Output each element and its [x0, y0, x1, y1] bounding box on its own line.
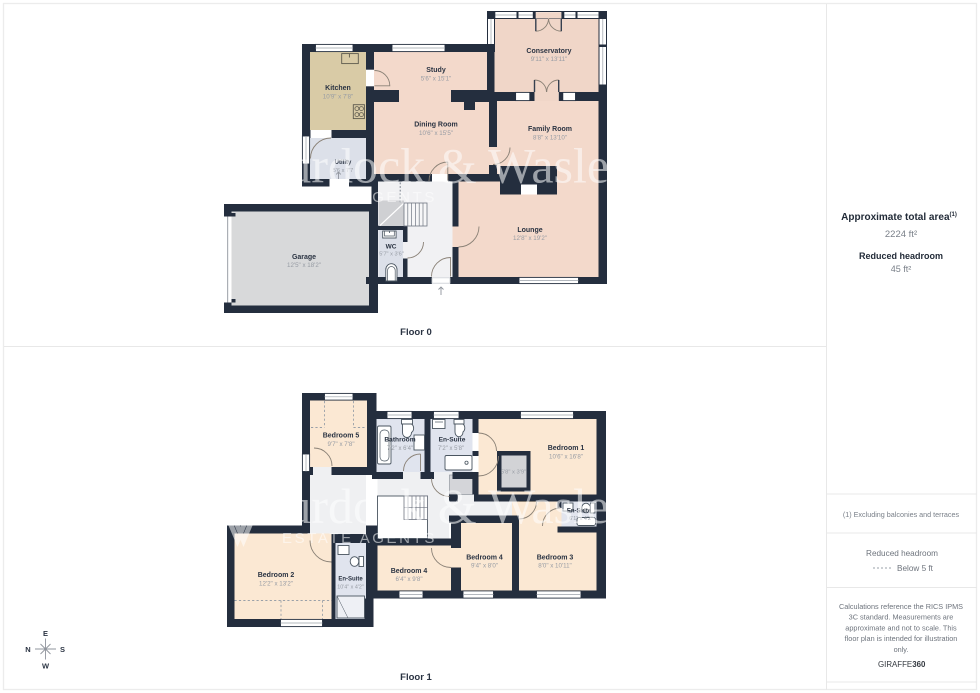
- svg-text:10'4" x 4'2": 10'4" x 4'2": [337, 585, 364, 591]
- svg-text:6'4" x 9'8": 6'4" x 9'8": [395, 576, 422, 583]
- svg-text:10'6" x 16'8": 10'6" x 16'8": [549, 454, 583, 461]
- svg-text:12'2" x 13'2": 12'2" x 13'2": [259, 581, 293, 588]
- svg-text:8'0" x 10'11": 8'0" x 10'11": [538, 563, 571, 570]
- svg-text:Below 5 ft: Below 5 ft: [897, 564, 934, 573]
- svg-text:Bedroom 1: Bedroom 1: [548, 445, 585, 452]
- svg-text:Lounge: Lounge: [517, 227, 542, 234]
- svg-text:5'7" x 3'6": 5'7" x 3'6": [379, 252, 403, 258]
- svg-text:Conservatory: Conservatory: [526, 48, 571, 55]
- svg-text:WC: WC: [386, 244, 397, 251]
- svg-text:floor plan is intended for ill: floor plan is intended for illustration: [845, 634, 958, 643]
- svg-text:Floor 0: Floor 0: [400, 327, 432, 338]
- svg-text:Bedroom 4: Bedroom 4: [466, 555, 503, 562]
- svg-text:En-Suite: En-Suite: [439, 437, 466, 444]
- svg-text:3C standard. Measurements are: 3C standard. Measurements are: [849, 613, 954, 622]
- svg-text:9'4" x 8'0": 9'4" x 8'0": [471, 563, 498, 570]
- svg-text:ESTATE AGENTS: ESTATE AGENTS: [282, 189, 437, 206]
- svg-text:Study: Study: [426, 67, 446, 74]
- svg-text:12'5" x 18'2": 12'5" x 18'2": [287, 262, 321, 269]
- svg-text:only.: only.: [894, 645, 909, 654]
- svg-text:En-Suite: En-Suite: [338, 577, 363, 583]
- svg-text:Family Room: Family Room: [528, 126, 572, 133]
- svg-text:Reduced headroom: Reduced headroom: [859, 251, 943, 261]
- svg-text:GIRAFFE360: GIRAFFE360: [878, 660, 926, 669]
- svg-text:5'6" x 15'1": 5'6" x 15'1": [421, 76, 452, 83]
- svg-text:10'6" x 15'5": 10'6" x 15'5": [419, 130, 453, 137]
- svg-text:approximate and not to scale.: approximate and not to scale. This: [845, 623, 957, 632]
- svg-text:S: S: [60, 645, 65, 654]
- svg-text:Kitchen: Kitchen: [325, 85, 351, 92]
- svg-text:Bedroom 5: Bedroom 5: [323, 433, 360, 440]
- svg-text:Murdock & Wasley: Murdock & Wasley: [242, 478, 634, 534]
- svg-text:7'2" x 5'8": 7'2" x 5'8": [438, 446, 464, 452]
- svg-text:Floor 1: Floor 1: [400, 672, 432, 683]
- svg-text:12'8" x 19'2": 12'8" x 19'2": [513, 235, 547, 242]
- svg-text:Bathroom: Bathroom: [384, 437, 415, 444]
- svg-text:10'9" x 7'8": 10'9" x 7'8": [323, 94, 354, 101]
- svg-text:Murdock & Wasley: Murdock & Wasley: [242, 138, 634, 194]
- svg-text:Bedroom 3: Bedroom 3: [537, 555, 574, 562]
- svg-text:9'7" x 7'8": 9'7" x 7'8": [327, 441, 354, 448]
- svg-text:2224 ft²: 2224 ft²: [885, 229, 917, 240]
- svg-text:ESTATE AGENTS: ESTATE AGENTS: [282, 530, 437, 547]
- svg-text:N: N: [25, 645, 30, 654]
- svg-text:Bedroom 4: Bedroom 4: [391, 568, 428, 575]
- svg-text:W: W: [42, 662, 50, 671]
- svg-text:Calculations reference the RIC: Calculations reference the RICS IPMS: [839, 602, 963, 611]
- svg-text:Bedroom 2: Bedroom 2: [258, 572, 295, 579]
- svg-text:Reduced headroom: Reduced headroom: [866, 549, 938, 558]
- svg-text:9'11" x 13'11": 9'11" x 13'11": [531, 56, 567, 63]
- svg-text:Dining Room: Dining Room: [414, 122, 458, 129]
- svg-text:7'2" x 6'4": 7'2" x 6'4": [387, 446, 413, 452]
- svg-text:45 ft²: 45 ft²: [891, 264, 912, 274]
- svg-text:Approximate total area(1): Approximate total area(1): [841, 212, 957, 223]
- svg-text:Garage: Garage: [292, 254, 316, 261]
- svg-text:5'8" x 3'9": 5'8" x 3'9": [501, 470, 526, 476]
- svg-text:(1) Excluding balconies and te: (1) Excluding balconies and terraces: [843, 510, 960, 519]
- svg-text:E: E: [43, 629, 48, 638]
